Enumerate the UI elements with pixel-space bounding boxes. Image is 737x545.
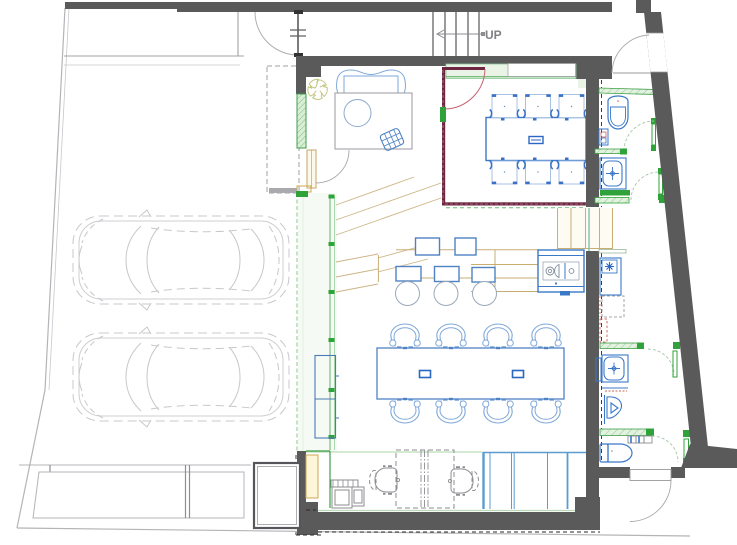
svg-text:UP: UP: [485, 28, 502, 42]
